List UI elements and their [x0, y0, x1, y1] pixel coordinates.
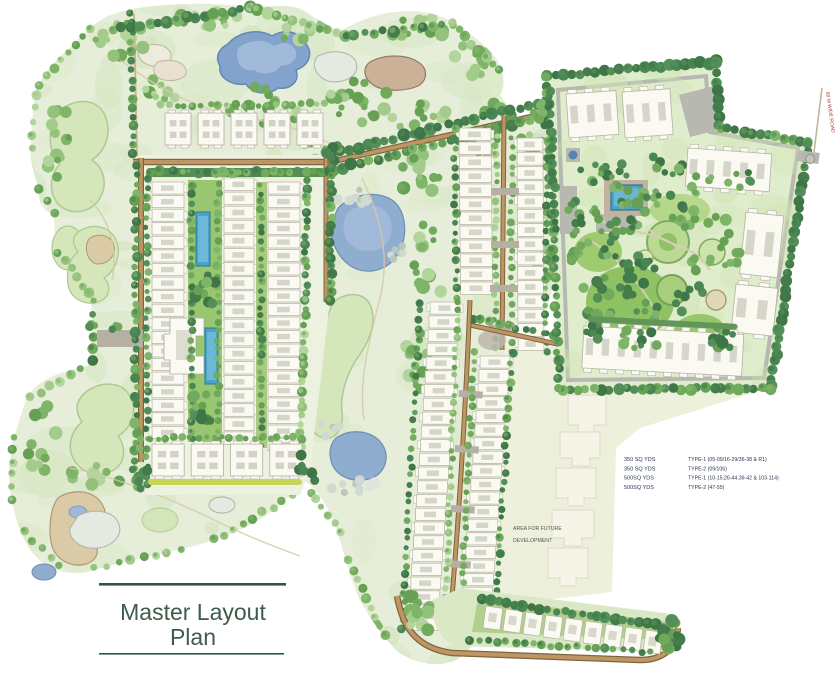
svg-text:TYPE-2 (47-55): TYPE-2 (47-55)	[688, 485, 725, 491]
svg-text:500SQ YDS: 500SQ YDS	[624, 476, 654, 482]
svg-text:Master Layout: Master Layout	[120, 599, 266, 625]
svg-text:500SQ YDS: 500SQ YDS	[624, 485, 654, 491]
svg-text:Plan: Plan	[170, 624, 216, 650]
svg-text:350 SQ YDS: 350 SQ YDS	[624, 457, 656, 463]
svg-text:TYPE-2 (09/106): TYPE-2 (09/106)	[688, 466, 727, 472]
svg-text:TYPE-1 (05-09/16-29/36-38 & R1: TYPE-1 (05-09/16-29/36-38 & R1)	[688, 457, 767, 463]
svg-text:TYPE-1 (10-15,26-44,39-42 & 10: TYPE-1 (10-15,26-44,39-42 & 103-114)	[688, 476, 779, 482]
svg-text:350 SQ YDS: 350 SQ YDS	[624, 466, 656, 472]
